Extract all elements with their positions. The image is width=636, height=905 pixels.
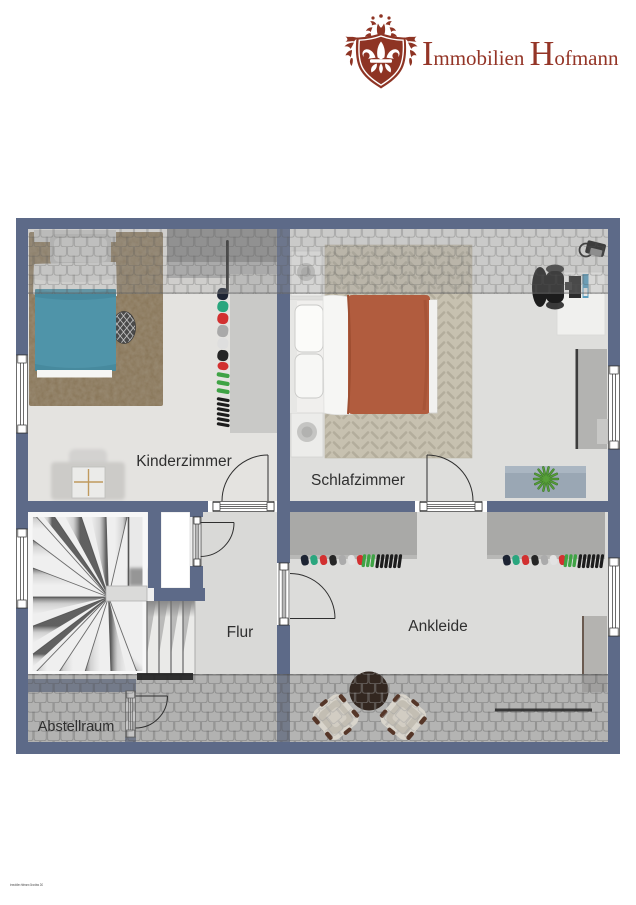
- svg-text:Abstellraum: Abstellraum: [38, 719, 115, 735]
- svg-text:Schlafzimmer: Schlafzimmer: [311, 472, 405, 489]
- svg-text:Kinderzimmer: Kinderzimmer: [136, 453, 232, 470]
- svg-text:Flur: Flur: [227, 624, 254, 641]
- svg-text:Immobilien Hofmann Grundriss D: Immobilien Hofmann Grundriss DG: [10, 883, 43, 887]
- svg-text:Ankleide: Ankleide: [408, 618, 467, 635]
